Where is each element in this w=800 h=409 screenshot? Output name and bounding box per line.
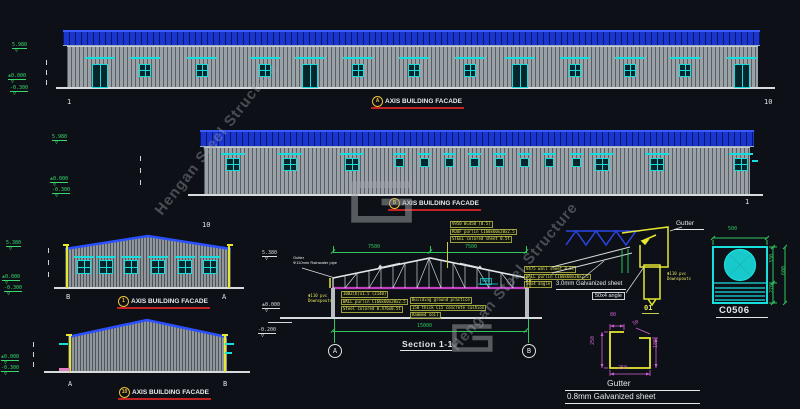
label-underline: [674, 229, 704, 230]
window: [595, 158, 609, 171]
lintel: [468, 153, 481, 155]
door: [92, 64, 108, 88]
window: [734, 158, 748, 171]
axis-bubble: 10: [119, 387, 130, 398]
gutter-dim: 250: [591, 336, 596, 345]
window: [569, 64, 581, 77]
lintel: [418, 153, 431, 155]
downspout: [66, 246, 68, 288]
window: [464, 64, 476, 77]
window: [226, 158, 240, 171]
elevation-marker: 5.980: [52, 134, 67, 146]
section-roof-note: V950 W=450 (0.5) ROOF purlin C160x60x20x…: [450, 221, 517, 243]
facade-a-groundline: [56, 87, 775, 89]
cyan-tick: [752, 160, 758, 162]
lintel: [443, 153, 456, 155]
grid-label: B: [223, 381, 227, 388]
lintel: [96, 256, 116, 258]
window: [679, 64, 691, 77]
eave-downspout-note: Φ110 pvcDownspouts: [667, 272, 691, 281]
eave-galvanized-label: 3.0mm Galvanized sheet: [556, 281, 622, 287]
axis-bubble: 1: [118, 296, 129, 307]
elevation-marker: ±0.000: [8, 73, 26, 85]
downspout-hook: [227, 244, 233, 246]
dim-text: 7500: [465, 245, 477, 250]
door: [302, 64, 318, 88]
grid-label: 10: [764, 99, 772, 106]
dim-tick: [140, 156, 141, 161]
window: [352, 64, 364, 77]
facade-1-groundline: [54, 287, 244, 289]
dim-tick: [140, 168, 141, 173]
lintel: [148, 256, 168, 258]
lintel: [518, 153, 531, 155]
window: [650, 158, 664, 171]
section-gutter-note: GutterΦ110mm Rainwater pipe: [293, 256, 337, 265]
grid-label: B: [66, 294, 70, 301]
window: [124, 260, 138, 274]
door: [512, 64, 528, 88]
lintel: [250, 57, 280, 59]
elevation-marker: 5.380: [6, 240, 21, 252]
lintel: [729, 153, 753, 155]
gutter-material: 0.8mm Galvanized sheet: [567, 392, 656, 401]
elevation-marker: -0.300: [1, 365, 19, 377]
fan-dim-total: 600: [782, 266, 787, 275]
lintel: [200, 256, 220, 258]
lintel: [560, 57, 590, 59]
label-underline: [716, 317, 768, 318]
facade-a-title: A AXIS BUILDING FACADE: [372, 96, 462, 107]
elevation-marker: 5.380: [262, 250, 277, 262]
small-window: [572, 158, 581, 167]
label-underline: [565, 403, 700, 404]
lintel: [130, 57, 160, 59]
lintel: [221, 153, 245, 155]
facade-10-groundline: [44, 371, 250, 373]
grid-line: [334, 319, 335, 343]
elevation-marker: -0.300: [4, 285, 22, 297]
dim-tick: [48, 272, 49, 277]
title-underline: [117, 307, 210, 309]
fan-detail-label: C0506: [719, 305, 750, 316]
window: [99, 260, 113, 274]
small-window: [395, 158, 404, 167]
title-underline: [371, 107, 464, 109]
lintel: [295, 57, 325, 59]
dim-text: 7500: [368, 245, 380, 250]
fan-dim-upper: 330: [770, 254, 775, 263]
section-title-underline: [400, 350, 452, 351]
cad-drawing-canvas: 1 10 5.980 ±0.000 -0.300 A AXIS BUILDING…: [0, 0, 800, 409]
lintel: [187, 57, 217, 59]
door: [734, 64, 750, 88]
dim-tick: [33, 352, 34, 357]
window: [345, 158, 359, 171]
small-window: [545, 158, 554, 167]
lintel: [121, 256, 141, 258]
grid-label: 1: [67, 99, 71, 106]
window: [151, 260, 165, 274]
facade-1-title: 1 AXIS BUILDING FACADE: [118, 296, 208, 307]
lintel: [543, 153, 556, 155]
dim-tick: [48, 248, 49, 253]
facade-10-title-text: AXIS BUILDING FACADE: [132, 388, 209, 397]
downspout-hook: [222, 334, 228, 336]
lintel: [570, 153, 583, 155]
lintel: [85, 57, 115, 59]
lintel: [670, 57, 700, 59]
label-divider: [565, 390, 700, 391]
window: [408, 64, 420, 77]
window: [178, 260, 192, 274]
small-window: [520, 158, 529, 167]
grid-label: A: [222, 294, 226, 301]
grid-label: 1: [745, 199, 749, 206]
elevation-marker: -0.200: [258, 327, 276, 339]
gutter-profile-drawing: [560, 310, 700, 380]
downspout-hook: [63, 244, 69, 246]
window: [624, 64, 636, 77]
grid-label: A: [68, 381, 72, 388]
small-window: [420, 158, 429, 167]
downspout: [228, 246, 230, 288]
grid-label: 10: [202, 222, 210, 229]
elevation-marker: ±0.000: [262, 302, 280, 314]
facade-10-title: 10 AXIS BUILDING FACADE: [119, 387, 209, 398]
lintel: [74, 256, 94, 258]
window: [77, 260, 91, 274]
dim-tick: [33, 362, 34, 367]
gutter-dim: 250: [618, 366, 627, 371]
facade-a-roof: [63, 30, 760, 46]
eave-gutter-label: Gutter: [676, 220, 694, 227]
dim-tick: [140, 180, 141, 185]
dim-tick: [46, 80, 47, 85]
gutter-dim: 80: [610, 313, 616, 318]
lintel: [343, 57, 373, 59]
lintel: [399, 57, 429, 59]
fan-dim-width: 500: [728, 227, 737, 232]
cyan-tick: [225, 343, 234, 345]
lintel: [278, 153, 302, 155]
grid-line: [528, 319, 529, 343]
small-window: [445, 158, 454, 167]
label-underline: [556, 289, 626, 290]
grid-bubble-b: B: [522, 344, 536, 358]
note-leader: [447, 242, 448, 268]
elevation-marker: 5.980: [12, 42, 27, 54]
facade-1-title-text: AXIS BUILDING FACADE: [131, 297, 208, 306]
grid-bubble-a: A: [328, 344, 342, 358]
eave-angle-label: 50x4 angle: [592, 292, 625, 300]
cyan-tick: [225, 352, 232, 354]
axis-bubble: A: [372, 96, 383, 107]
fan-dim-lower: 270: [770, 284, 775, 293]
small-window: [470, 158, 479, 167]
dim-text: 15000: [417, 324, 432, 329]
facade-a-title-text: AXIS BUILDING FACADE: [385, 97, 462, 106]
section-wall-note: 100Z(b)x1.5 (Z140) WALL purlin C160x60x2…: [341, 291, 408, 313]
downspout-hook: [66, 334, 72, 336]
section-title: Section 1-1: [402, 339, 453, 349]
title-underline: [118, 398, 211, 400]
section-floor-step: [268, 322, 292, 323]
plinth-mark: [59, 368, 70, 371]
lintel: [615, 57, 645, 59]
gutter-profile-name: Gutter: [607, 378, 631, 388]
window: [196, 64, 208, 77]
facade-b-groundline: [188, 194, 763, 196]
dim-text-chord: 900: [480, 278, 492, 285]
cyan-tick: [59, 343, 68, 345]
facade-b-roof: [200, 130, 754, 147]
lintel: [175, 256, 195, 258]
elevation-marker: -0.300: [10, 85, 28, 97]
downspout: [69, 336, 71, 372]
facade-1-roofline: [63, 234, 233, 252]
lintel: [727, 57, 757, 59]
lintel: [505, 57, 535, 59]
facade-10-roofline: [66, 317, 229, 339]
dim-tick: [33, 342, 34, 347]
lintel: [493, 153, 506, 155]
window: [259, 64, 271, 77]
dim-tick: [46, 60, 47, 65]
window: [283, 158, 297, 171]
lintel: [455, 57, 485, 59]
gutter-dim: 180: [654, 339, 659, 348]
lintel: [340, 153, 364, 155]
watermark-logo: [448, 322, 498, 354]
downspout: [224, 336, 226, 372]
window: [139, 64, 151, 77]
small-window: [495, 158, 504, 167]
dim-tick: [46, 70, 47, 75]
watermark-logo: [345, 178, 420, 226]
lintel: [590, 153, 614, 155]
section-downspout-note: Φ110 pvcDownspouts: [308, 294, 332, 303]
dim-tick: [48, 260, 49, 265]
window: [203, 260, 217, 274]
elevation-marker: -0.300: [52, 187, 70, 199]
lintel: [645, 153, 669, 155]
lintel: [393, 153, 406, 155]
